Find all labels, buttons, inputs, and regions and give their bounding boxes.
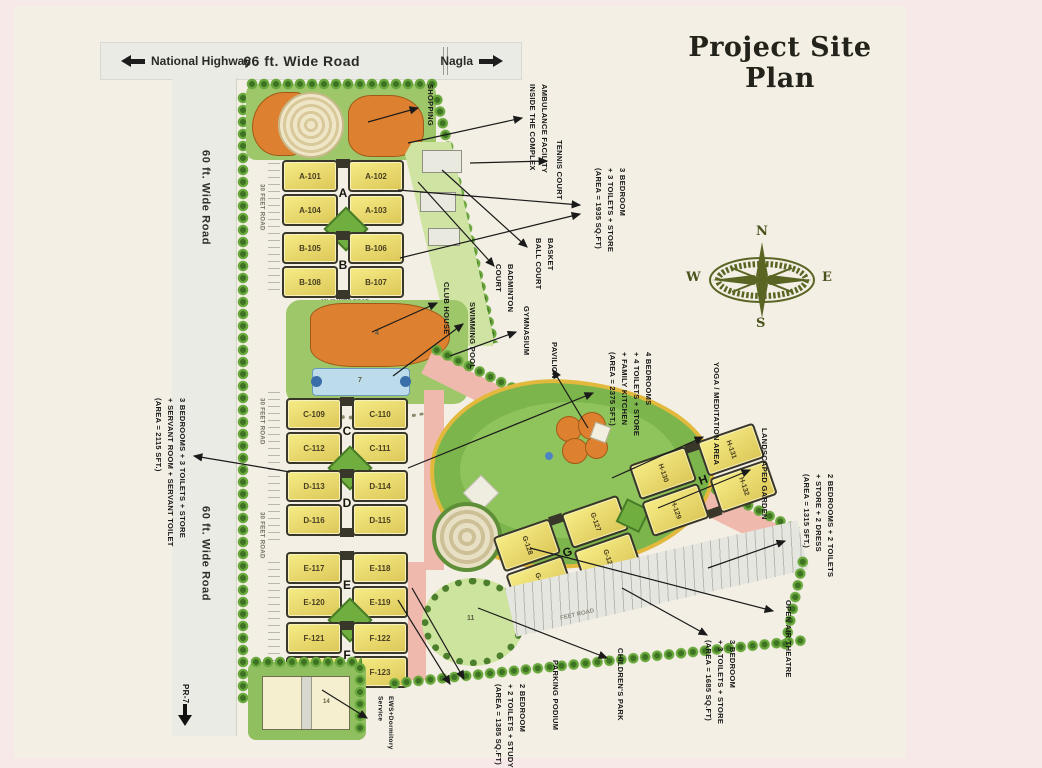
callout-shopping: SHOPPING — [424, 84, 436, 126]
callout-tennis-court: TENNIS COURT — [553, 140, 565, 200]
callout-type-ab: 3 BEDROOM + 3 TOILETS + STORE (AREA = 19… — [592, 168, 628, 252]
callout-ews: EWS+Dormitory Service — [374, 696, 395, 750]
site-plan-canvas: National Highway 66 ft. Wide Road Nagla … — [0, 0, 1042, 768]
callout-ambulance: AMBULANCE FACILITY INSIDE THE COMPLEX — [526, 84, 550, 173]
callout-parking: PARKING PODIUM — [549, 660, 561, 730]
callout-type-h: 2 BEDROOMS + 2 TOILETS + STORE + 2 DRESS… — [800, 474, 836, 577]
callout-type-cd: 4 BEDROOMS + 4 TOILETS + STORE + FAMILY … — [606, 352, 654, 436]
callout-theatre: OPEN AIR THEATRE — [782, 600, 794, 678]
callout-type-ef: 2 BEDROOM + 2 TOILETS + STUDY (AREA = 13… — [492, 684, 528, 768]
callout-garden: LANDSCAPED GARDEN — [758, 428, 770, 520]
callout-type-g: 3 BEDROOM + 3 TOILETS + STORE (AREA = 16… — [702, 640, 738, 724]
callout-club-house: CLUB HOUSE — [440, 282, 452, 335]
callout-basketball: BASKET BALL COURT — [532, 238, 556, 290]
callout-badminton: BADMINTON COURT — [492, 264, 516, 312]
callout-gymnasium: GYMNASIUM — [520, 306, 532, 355]
callout-pavilion: PAVILION — [548, 342, 560, 379]
callout-swimming-pool: SWIMMING POOL — [466, 302, 478, 369]
callout-yoga: YOGA / MEDITATION AREA — [710, 362, 722, 465]
callout-type-servant: 3 BEDROOMS + 3 TOILETS + STORE + SERVANT… — [152, 398, 188, 547]
callout-children-park: CHILDREN'S PARK — [614, 648, 626, 721]
callout-arrows — [0, 0, 1042, 768]
